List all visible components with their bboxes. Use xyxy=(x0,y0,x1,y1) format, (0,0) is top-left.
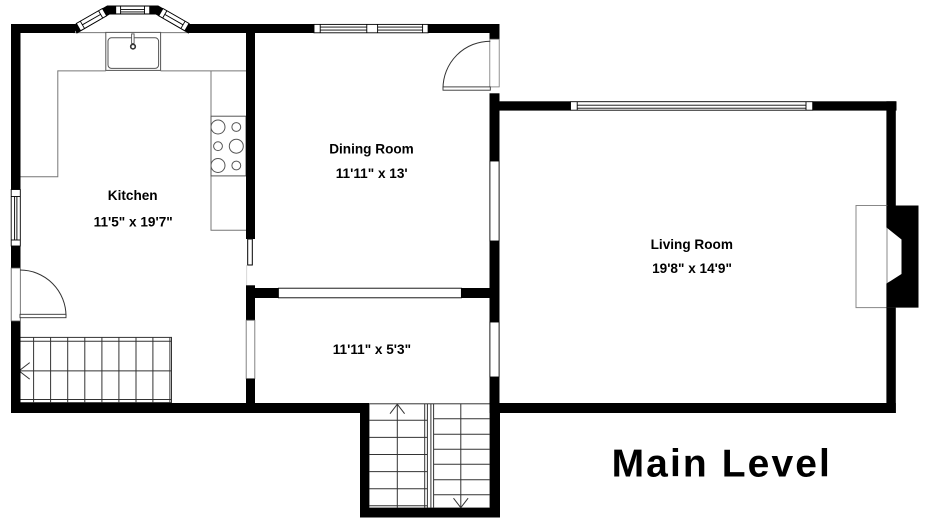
svg-text:11'5" x 19'7": 11'5" x 19'7" xyxy=(94,214,173,229)
svg-text:Living Room: Living Room xyxy=(651,237,733,252)
svg-text:Main Level: Main Level xyxy=(612,443,832,486)
svg-text:Kitchen: Kitchen xyxy=(108,188,158,203)
svg-text:19'8" x 14'9": 19'8" x 14'9" xyxy=(652,261,732,276)
svg-text:11'11" x 5'3": 11'11" x 5'3" xyxy=(333,342,411,357)
svg-text:Dining Room: Dining Room xyxy=(329,141,414,156)
svg-text:11'11" x 13': 11'11" x 13' xyxy=(336,166,408,181)
